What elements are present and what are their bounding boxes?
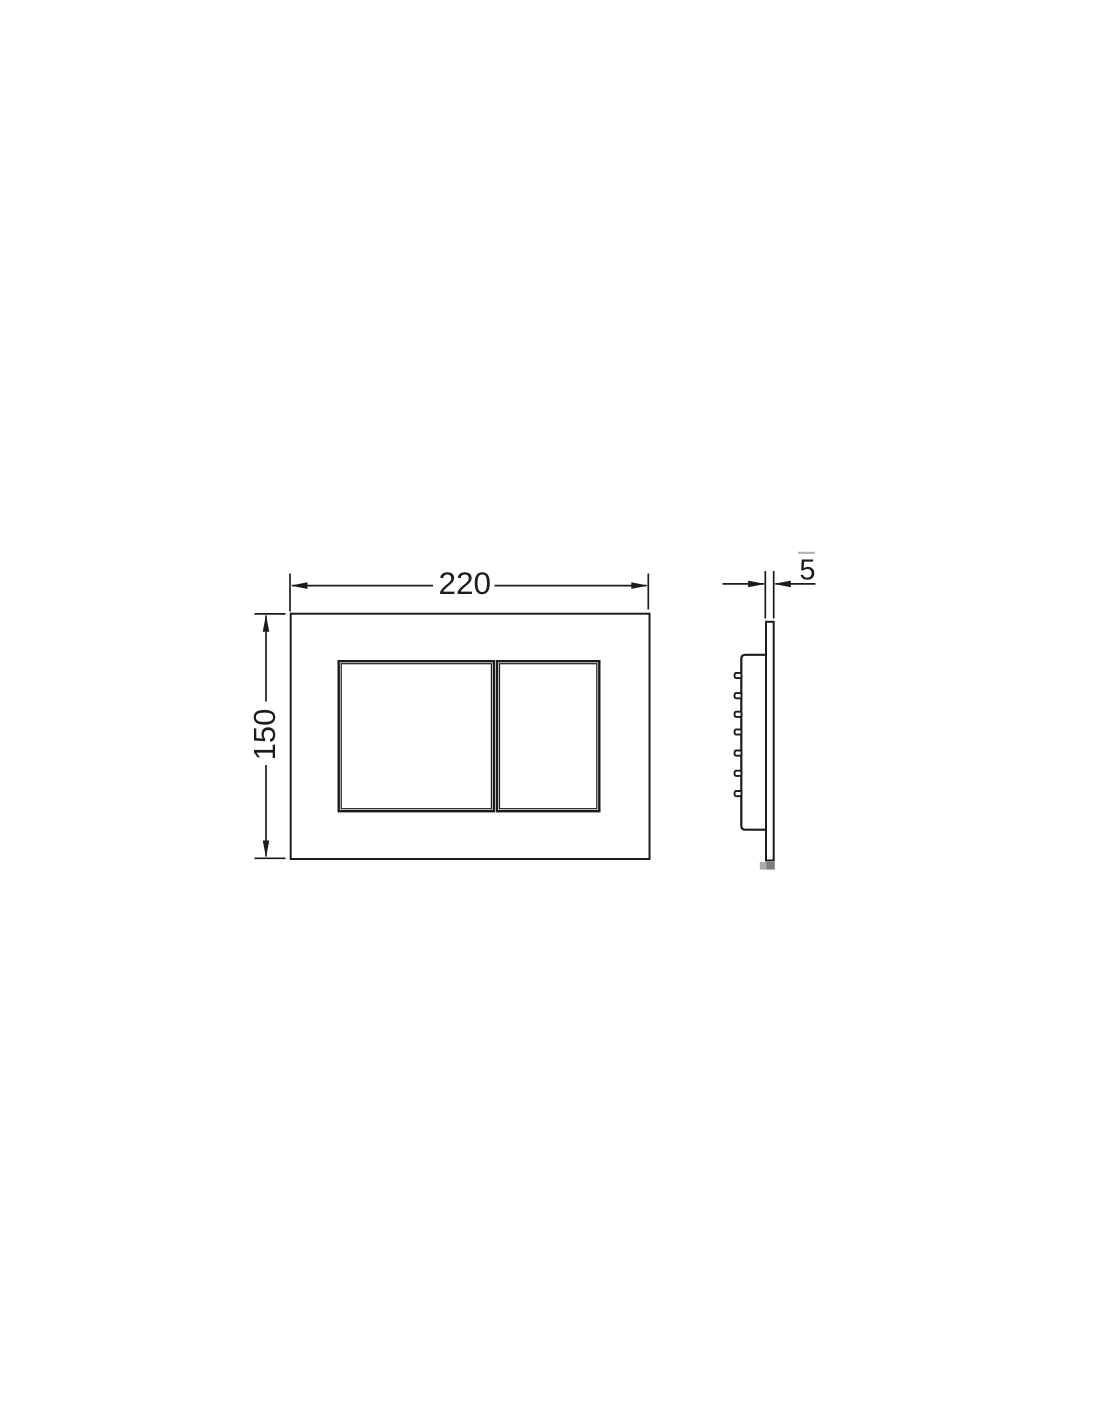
svg-text:5: 5 (799, 554, 815, 586)
svg-text:150: 150 (247, 709, 282, 761)
svg-text:220: 220 (439, 565, 492, 601)
